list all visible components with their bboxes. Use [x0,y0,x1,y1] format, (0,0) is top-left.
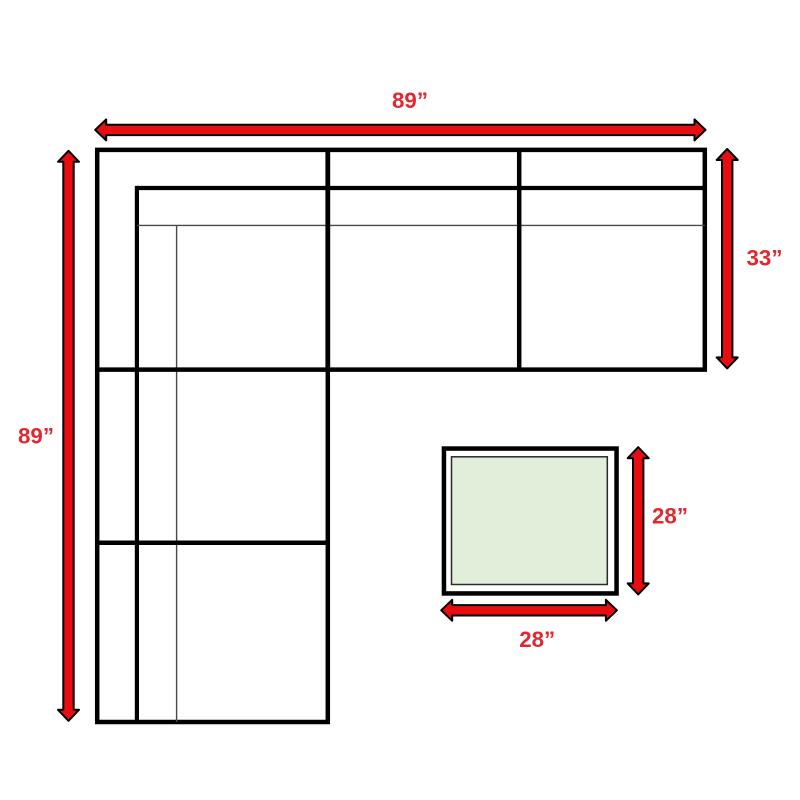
svg-text:28”: 28” [519,627,555,652]
svg-text:89”: 89” [18,424,54,449]
svg-text:28”: 28” [652,503,688,528]
svg-text:89”: 89” [392,88,428,113]
svg-text:33”: 33” [747,246,783,271]
